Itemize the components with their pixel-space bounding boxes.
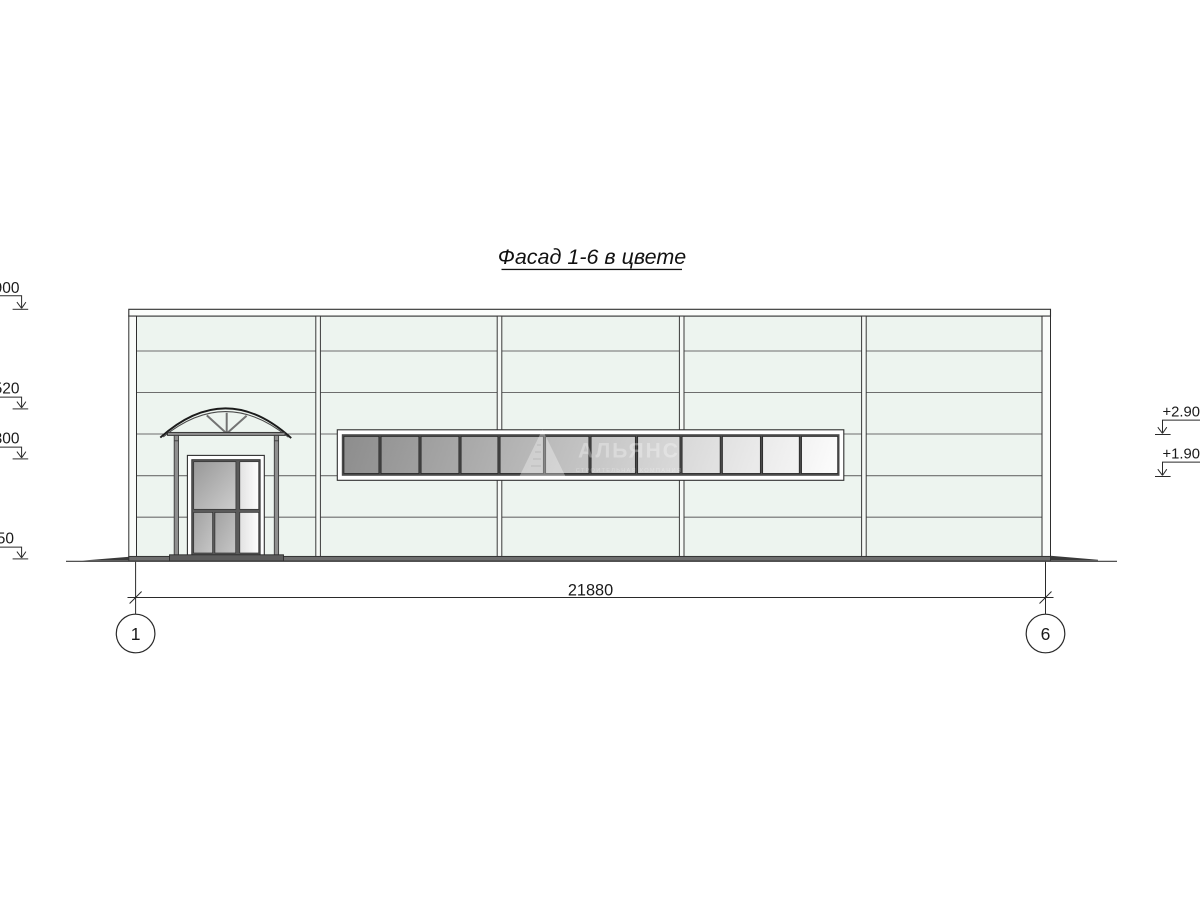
svg-text:АЛЬЯНС: АЛЬЯНС — [578, 440, 680, 463]
svg-text:СТРОИТЕЛЬНАЯ КОМПАНИЯ: СТРОИТЕЛЬНАЯ КОМПАНИЯ — [576, 468, 682, 474]
svg-text:21880: 21880 — [568, 581, 613, 599]
svg-text:+1.90: +1.90 — [1163, 446, 1200, 462]
svg-text:300: 300 — [0, 430, 20, 447]
svg-text:50: 50 — [0, 530, 14, 547]
svg-text:Фасад 1-6 в цвете: Фасад 1-6 в цвете — [498, 245, 687, 269]
svg-text:+2.90: +2.90 — [1163, 404, 1200, 420]
svg-text:520: 520 — [0, 380, 20, 397]
svg-text:1: 1 — [131, 624, 141, 644]
svg-text:6: 6 — [1041, 624, 1051, 644]
svg-text:900: 900 — [0, 280, 20, 297]
